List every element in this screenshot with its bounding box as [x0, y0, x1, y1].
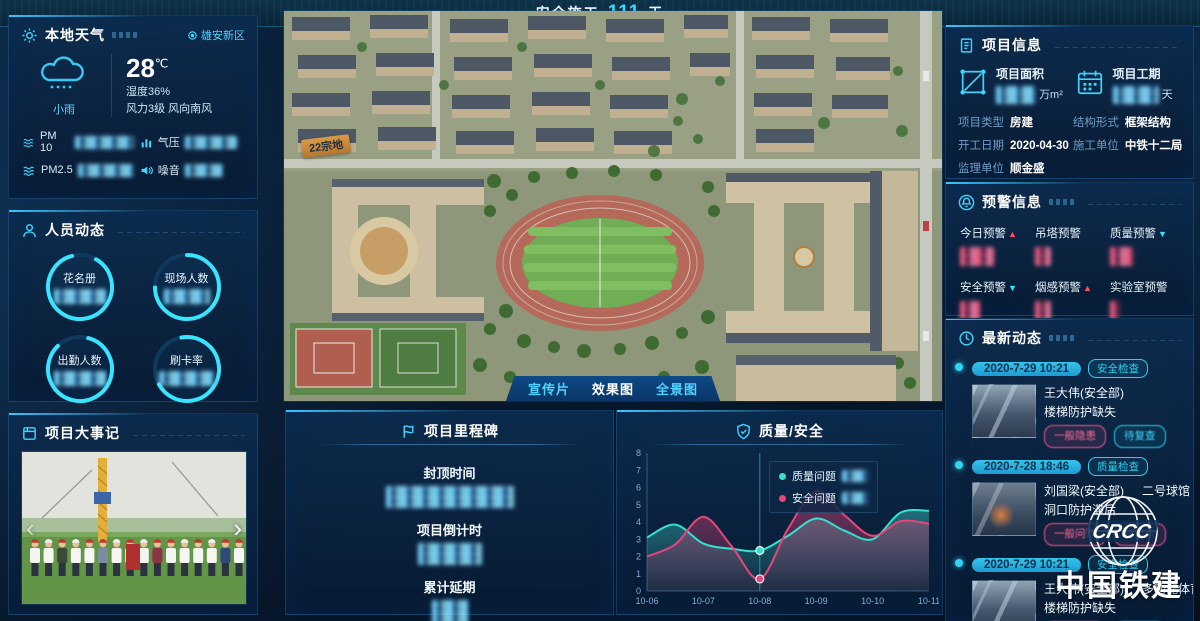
weather-current: 小雨 28℃ 湿度36% 风力3级 风向南风	[9, 49, 257, 120]
feed-date: 2020-7-29 10:21	[972, 362, 1081, 376]
clock-icon	[958, 330, 975, 347]
wind-label: 风力3级 风向南风	[126, 101, 212, 118]
trend-down-icon: ▼	[1008, 283, 1017, 293]
noise-value-blurred	[185, 164, 223, 177]
svg-text:5: 5	[636, 500, 641, 510]
header-line	[118, 228, 245, 233]
roster-ring: 花名册	[43, 250, 117, 324]
svg-text:4: 4	[636, 517, 641, 527]
area-value-blurred	[996, 86, 1036, 104]
svg-text:10-11: 10-11	[918, 596, 939, 606]
quality-dot	[779, 473, 786, 480]
crane-warning: 吊塔预警	[1035, 224, 1104, 266]
person-icon	[21, 222, 38, 239]
quality-series-label: 质量问题	[792, 468, 836, 484]
svg-text:1: 1	[636, 569, 641, 579]
duration-label: 项目工期	[1113, 65, 1173, 82]
aerial-3d-view: 22宗地 宣传片 效果图 全景图	[283, 10, 943, 402]
duration-value-blurred	[1113, 86, 1159, 104]
swipe-rate-ring: 刷卡率	[150, 332, 224, 406]
safety-series-label: 安全问题	[792, 490, 836, 506]
svg-text:0: 0	[636, 586, 641, 596]
svg-text:10-09: 10-09	[805, 596, 828, 606]
flag-icon	[400, 423, 417, 440]
calendar-icon	[1075, 67, 1105, 97]
svg-text:8: 8	[636, 448, 641, 458]
temperature-unit: ℃	[155, 56, 168, 70]
safety-value-blurred	[842, 492, 868, 504]
feed-photo	[972, 580, 1036, 621]
weather-panel: 本地天气 雄安新区 小雨 28℃ 湿度36% 风力3级 风向南风	[8, 15, 258, 199]
onsite-count-ring: 现场人数	[150, 250, 224, 324]
pm10-value-blurred	[75, 136, 134, 149]
events-title: 项目大事记	[45, 423, 120, 443]
structure-type-field: 结构形式框架结构	[1073, 114, 1183, 130]
group-photo	[22, 452, 246, 604]
quality-safety-title: 质量/安全	[759, 421, 824, 441]
dashboard: 安全施工 111 天	[0, 0, 1200, 621]
weather-condition: 小雨	[23, 101, 105, 117]
trend-down-icon: ▼	[1158, 229, 1167, 239]
crcc-globe-icon: CRCC	[1073, 492, 1173, 570]
bell-icon	[958, 194, 975, 211]
safety-warning: 安全预警▼	[960, 278, 1029, 320]
safety-dot	[779, 495, 786, 502]
calendar-page-icon	[21, 425, 38, 442]
svg-text:6: 6	[636, 483, 641, 493]
status-tag: 待复查	[1114, 425, 1166, 448]
location-label: 雄安新区	[187, 27, 245, 43]
header-decoration	[1049, 199, 1075, 205]
pm10-metric: PM 10	[23, 130, 134, 154]
inspection-type-badge: 安全检查	[1088, 359, 1148, 378]
header-line	[133, 431, 245, 436]
noise-metric: 噪音	[140, 162, 243, 178]
delay-value-blurred	[432, 600, 468, 621]
temperature-value: 28	[126, 53, 155, 83]
trend-up-icon: ▲	[1008, 229, 1017, 239]
document-icon	[958, 37, 975, 54]
timeline-bullet	[955, 461, 963, 469]
quality-warning: 质量预警▼	[1110, 224, 1179, 266]
quality-value-blurred	[842, 470, 868, 482]
milestone-photo: ‹ ›	[21, 451, 247, 605]
panorama-button[interactable]: 全景图	[656, 379, 698, 398]
personnel-title: 人员动态	[45, 220, 105, 240]
feed-photo	[972, 384, 1036, 438]
timeline-bullet	[955, 559, 963, 567]
topping-time-label: 封顶时间	[423, 463, 475, 482]
warnings-title: 预警信息	[982, 192, 1042, 212]
feed-photo	[972, 482, 1036, 536]
lab-warning: 实验室预警	[1110, 278, 1179, 320]
pressure-bars-icon	[140, 136, 153, 149]
supervisor-field: 监理单位顺金盛	[958, 160, 1069, 176]
photo-next-arrow[interactable]: ›	[233, 515, 242, 541]
attendance-ring: 出勤人数	[43, 332, 117, 406]
topping-time-value-blurred	[386, 486, 514, 508]
milestone-title: 项目里程碑	[424, 421, 499, 441]
pm25-value-blurred	[78, 164, 134, 177]
area-square-icon	[958, 67, 988, 97]
header-line	[1088, 200, 1181, 205]
crane-warning-value-blurred	[1035, 247, 1051, 266]
project-info-title: 项目信息	[982, 35, 1042, 55]
svg-text:CRCC: CRCC	[1090, 521, 1153, 543]
feed-title: 最新动态	[982, 328, 1042, 348]
area-label: 项目面积	[996, 65, 1063, 82]
timeline-bullet	[955, 363, 963, 371]
duration-unit: 天	[1162, 89, 1173, 101]
svg-text:10-06: 10-06	[635, 596, 658, 606]
scene-view-switcher: 宣传片 效果图 全景图	[506, 376, 720, 401]
contractor-field: 施工单位中铁十二局	[1073, 137, 1183, 153]
inspector-name: 王大伟(安全部)	[1044, 384, 1124, 403]
header-decoration	[112, 32, 138, 38]
feed-date: 2020-7-28 18:46	[972, 460, 1081, 474]
delay-label: 累计延期	[423, 577, 475, 596]
header-decoration	[1049, 335, 1075, 341]
today-warning: 今日预警▲	[960, 224, 1029, 266]
project-info-panel: 项目信息 项目面积 万m² 项目工期 天 项目类型房建 结构形式框架结构 开工日…	[945, 25, 1194, 179]
promo-video-button[interactable]: 宣传片	[528, 379, 570, 398]
svg-text:2: 2	[636, 552, 641, 562]
area-unit: 万m²	[1039, 89, 1063, 101]
pressure-value-blurred	[185, 136, 237, 149]
svg-text:3: 3	[636, 534, 641, 544]
feed-item[interactable]: 2020-7-29 10:21 安全检查 王大伟(安全部) 楼梯防护缺失 一般隐…	[946, 352, 1193, 450]
pm-waves-icon	[23, 136, 35, 149]
crcc-logo: CRCC 中国铁建	[1048, 492, 1198, 605]
quality-warning-value-blurred	[1110, 247, 1134, 266]
svg-text:7: 7	[636, 465, 641, 475]
chart-tooltip: 质量问题 安全问题	[769, 461, 878, 513]
project-events-panel: 项目大事记 ‹ ›	[8, 413, 258, 615]
issue-description: 楼梯防护缺失	[1044, 403, 1166, 422]
project-type-field: 项目类型房建	[958, 114, 1069, 130]
onsite-value-blurred	[164, 289, 210, 304]
project-area-stat: 项目面积 万m²	[958, 65, 1065, 104]
milestone-panel: 项目里程碑 封顶时间 项目倒计时 累计延期	[285, 410, 614, 615]
humidity-label: 湿度36%	[126, 84, 212, 101]
pm25-metric: PM2.5	[23, 162, 134, 178]
pm-waves-icon	[23, 164, 36, 177]
shield-check-icon	[735, 423, 752, 440]
smoke-warning: 烟感预警▲	[1035, 278, 1104, 320]
svg-text:10-08: 10-08	[748, 596, 771, 606]
quality-safety-chart: 01234567810-0610-0710-0810-0910-1010-11 …	[621, 445, 940, 618]
location-target-icon	[187, 30, 198, 41]
hazard-tag: 一般隐患	[1044, 425, 1106, 448]
noise-speaker-icon	[140, 164, 153, 177]
inspection-type-badge: 质量检查	[1088, 457, 1148, 476]
crcc-name: 中国铁建	[1048, 561, 1190, 605]
countdown-value-blurred	[418, 543, 482, 565]
start-date-field: 开工日期2020-04-30	[958, 137, 1069, 153]
header-line	[1088, 336, 1181, 341]
roster-value-blurred	[54, 289, 106, 304]
attendance-value-blurred	[54, 371, 106, 386]
svg-text:10-07: 10-07	[692, 596, 715, 606]
render-view-button[interactable]: 效果图	[592, 379, 634, 398]
today-warning-value-blurred	[960, 247, 994, 266]
photo-prev-arrow[interactable]: ‹	[26, 515, 35, 541]
warnings-panel: 预警信息 今日预警▲ 吊塔预警 质量预警▼ 安全预警▼ 烟感预警▲ 实验室预警	[945, 182, 1194, 316]
project-duration-stat: 项目工期 天	[1075, 65, 1182, 104]
rain-cloud-icon	[38, 54, 90, 94]
svg-text:10-10: 10-10	[861, 596, 884, 606]
sun-icon	[21, 27, 38, 44]
weather-title: 本地天气	[45, 25, 105, 45]
quality-safety-panel: 质量/安全 01234567810-0610-0710-0810-0910-10…	[616, 410, 943, 615]
countdown-label: 项目倒计时	[417, 520, 482, 539]
header-line	[1055, 43, 1181, 48]
trend-up-icon: ▲	[1083, 283, 1092, 293]
aerial-render	[284, 11, 942, 401]
pressure-metric: 气压	[140, 130, 243, 154]
personnel-panel: 人员动态 花名册 现场人数 出勤人数 刷卡率	[8, 210, 258, 402]
swipe-rate-value-blurred	[159, 371, 215, 386]
